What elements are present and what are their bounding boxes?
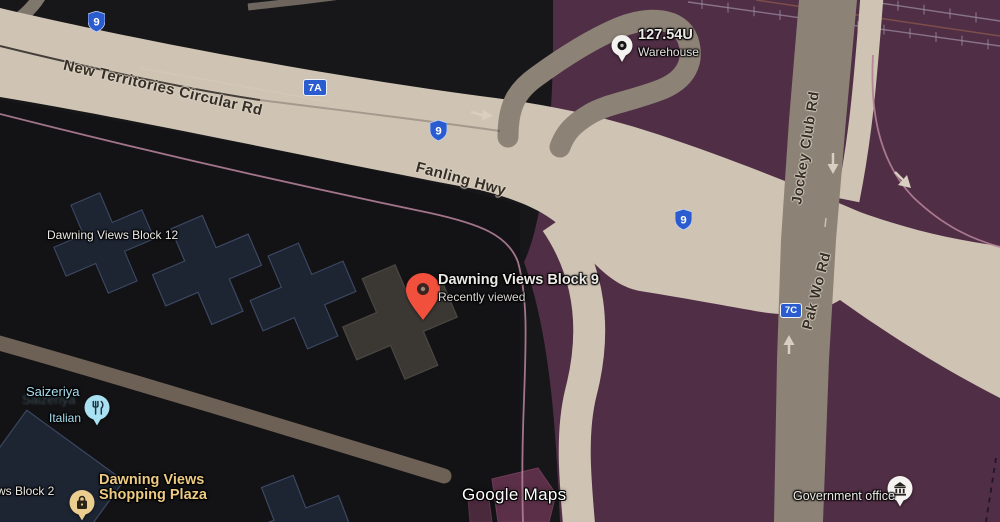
warehouse-category: Warehouse [638,45,699,59]
svg-text:9: 9 [435,126,441,138]
map-attribution-google-maps[interactable]: Google Maps [462,485,566,505]
svg-text:9: 9 [93,17,99,29]
route-shield-9-west: 9 [88,11,105,32]
route-badge-7c: 7C [780,303,802,318]
saizeriya-category: Italian [49,411,81,425]
saizeriya-label[interactable]: Saizeriya [26,384,79,399]
shopping-plaza-line1[interactable]: Dawning Views [99,473,207,488]
warehouse-pin-icon[interactable] [609,33,635,65]
block9-status: Recently viewed [438,290,599,304]
map-canvas[interactable]: 9 7A 9 9 7C New Territories Circular Rd … [0,0,1000,522]
government-office-label[interactable]: Government office [793,489,895,503]
route-shield-9-east: 9 [675,209,692,230]
restaurant-pin-icon[interactable] [83,394,111,428]
route-badge-7c-label: 7C [785,305,797,316]
block9-marker-icon[interactable] [405,272,441,322]
warehouse-name[interactable]: 127.54U [638,27,699,43]
block12-label[interactable]: Dawning Views Block 12 [47,228,178,242]
route-badge-7a-label: 7A [308,82,321,94]
warehouse-label[interactable]: 127.54U Warehouse [638,27,699,59]
shopping-plaza-label[interactable]: Dawning Views Shopping Plaza [99,473,207,503]
shopping-pin-icon[interactable] [68,489,96,522]
block9-label[interactable]: Dawning Views Block 9 Recently viewed [438,272,599,304]
block2-label[interactable]: ws Block 2 [0,484,54,498]
route-shield-9-mid: 9 [430,120,447,141]
block9-name[interactable]: Dawning Views Block 9 [438,272,599,288]
route-badge-7a: 7A [303,79,327,96]
svg-text:9: 9 [680,215,686,227]
shopping-plaza-line2: Shopping Plaza [99,488,207,503]
